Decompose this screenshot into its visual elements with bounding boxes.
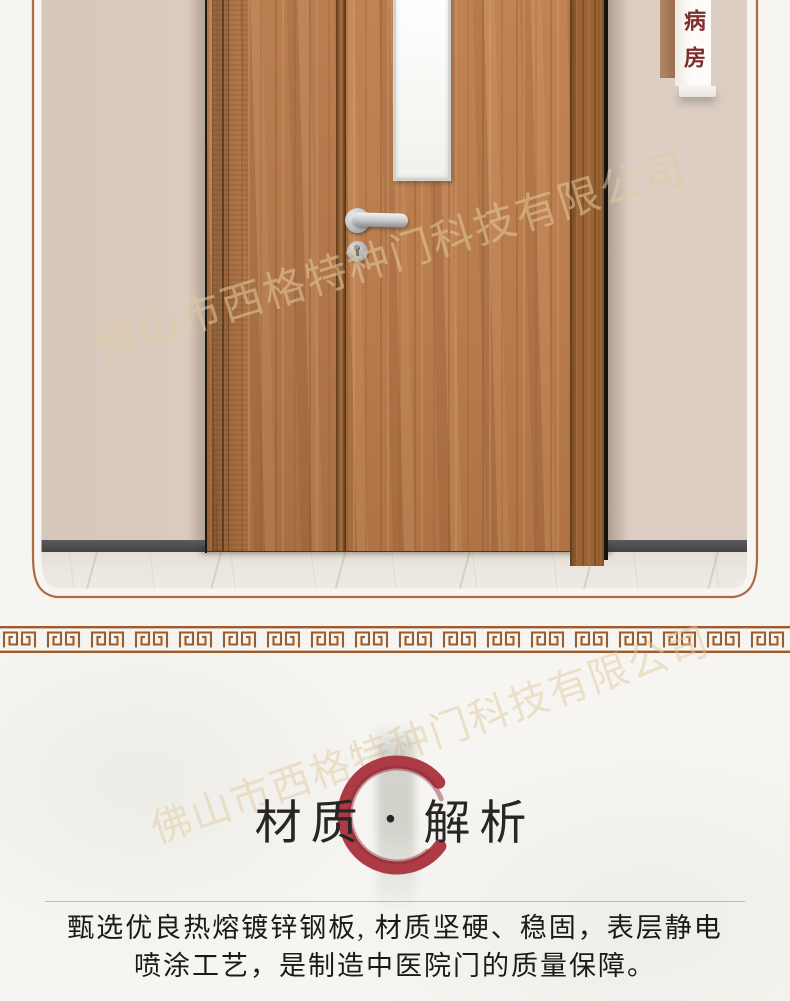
section-title: 材质·解析: [0, 784, 790, 853]
wall-shadow-left: [188, 0, 206, 546]
door-right-jamb: [570, 0, 604, 566]
door-left-leaf-shading: [212, 0, 248, 551]
door-vision-panel-glass: [393, 0, 451, 181]
ward-sign-plaque-base: [679, 86, 716, 97]
ward-sign-plaque: 病房: [675, 0, 711, 86]
door-photo: [205, 0, 608, 566]
door-lock-escutcheon: [347, 241, 368, 262]
wall-shadow-right: [607, 0, 629, 546]
door-left-leaf: [207, 0, 336, 551]
section-title-right: 解析: [423, 798, 535, 850]
section-description: 甄选优良热熔镀锌钢板, 材质坚硬、稳固，表层静电 喷涂工艺，是制造中医院门的质量…: [0, 909, 790, 985]
door-groove: [222, 0, 224, 551]
door-meeting-stile: [336, 0, 346, 551]
door-groove: [228, 0, 229, 551]
door-right-leaf: [346, 0, 572, 551]
door-frame-edge-right: [604, 0, 608, 560]
description-line-2: 喷涂工艺，是制造中医院门的质量保障。: [0, 947, 790, 985]
title-separator-dot: ·: [383, 792, 408, 846]
divider-line: [45, 901, 745, 902]
ward-sign-stripe: [660, 0, 675, 78]
product-detail-page: 病房 佛山市西格特种门科技有限公司 佛山市西格特种门科技有限公司: [0, 0, 790, 1001]
meander-border: [0, 626, 790, 653]
keyhole-slot: [356, 249, 359, 256]
door-handle-lever: [352, 212, 408, 227]
ward-sign-label: 病房: [677, 0, 709, 86]
description-line-1: 甄选优良热熔镀锌钢板, 材质坚硬、稳固，表层静电: [0, 909, 790, 947]
section-title-left: 材质: [255, 798, 367, 850]
